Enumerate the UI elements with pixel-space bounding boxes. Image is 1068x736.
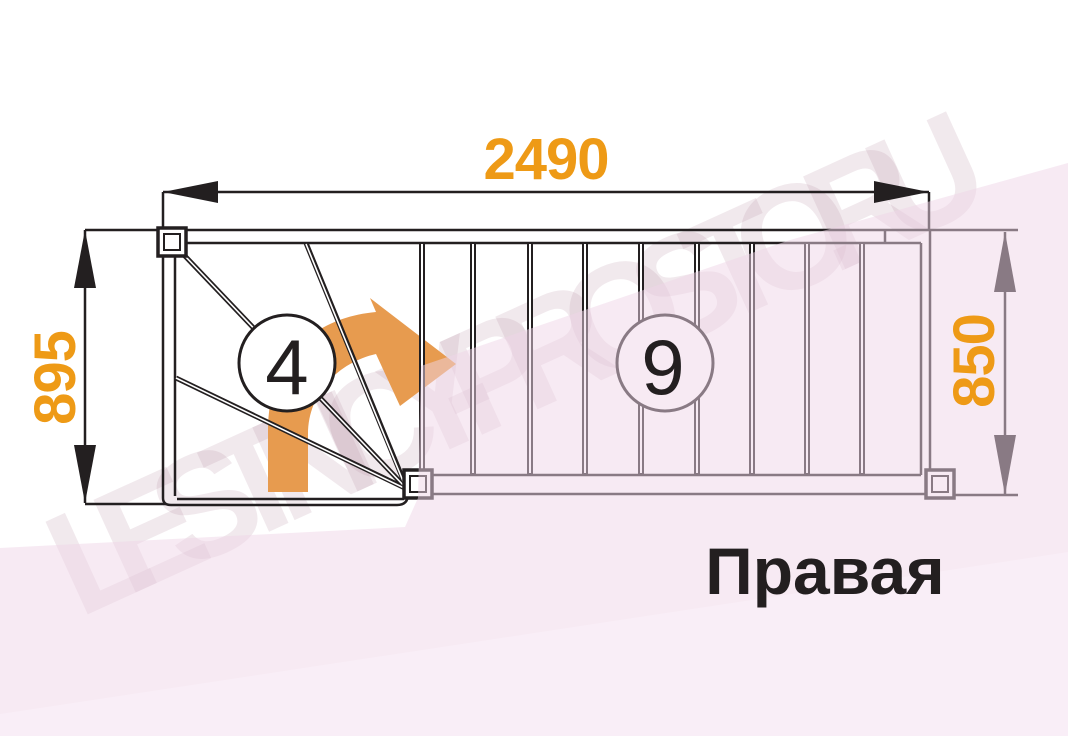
straight-step-count: 9 — [613, 322, 713, 412]
stair-orientation-label: Правая — [640, 533, 1010, 609]
post-top-left — [158, 228, 186, 256]
dimension-left-width: 895 — [26, 268, 86, 488]
staircase-plan-drawing — [0, 0, 1068, 736]
dimension-right-width: 850 — [945, 251, 1005, 471]
post-bottom-right — [926, 470, 954, 498]
post-winder-corner — [404, 470, 432, 498]
staircase-plan-page: LESTNICY-PROSTO.RU — [0, 0, 1068, 736]
dimension-total-length: 2490 — [163, 130, 929, 190]
winder-step-count: 4 — [237, 322, 337, 412]
